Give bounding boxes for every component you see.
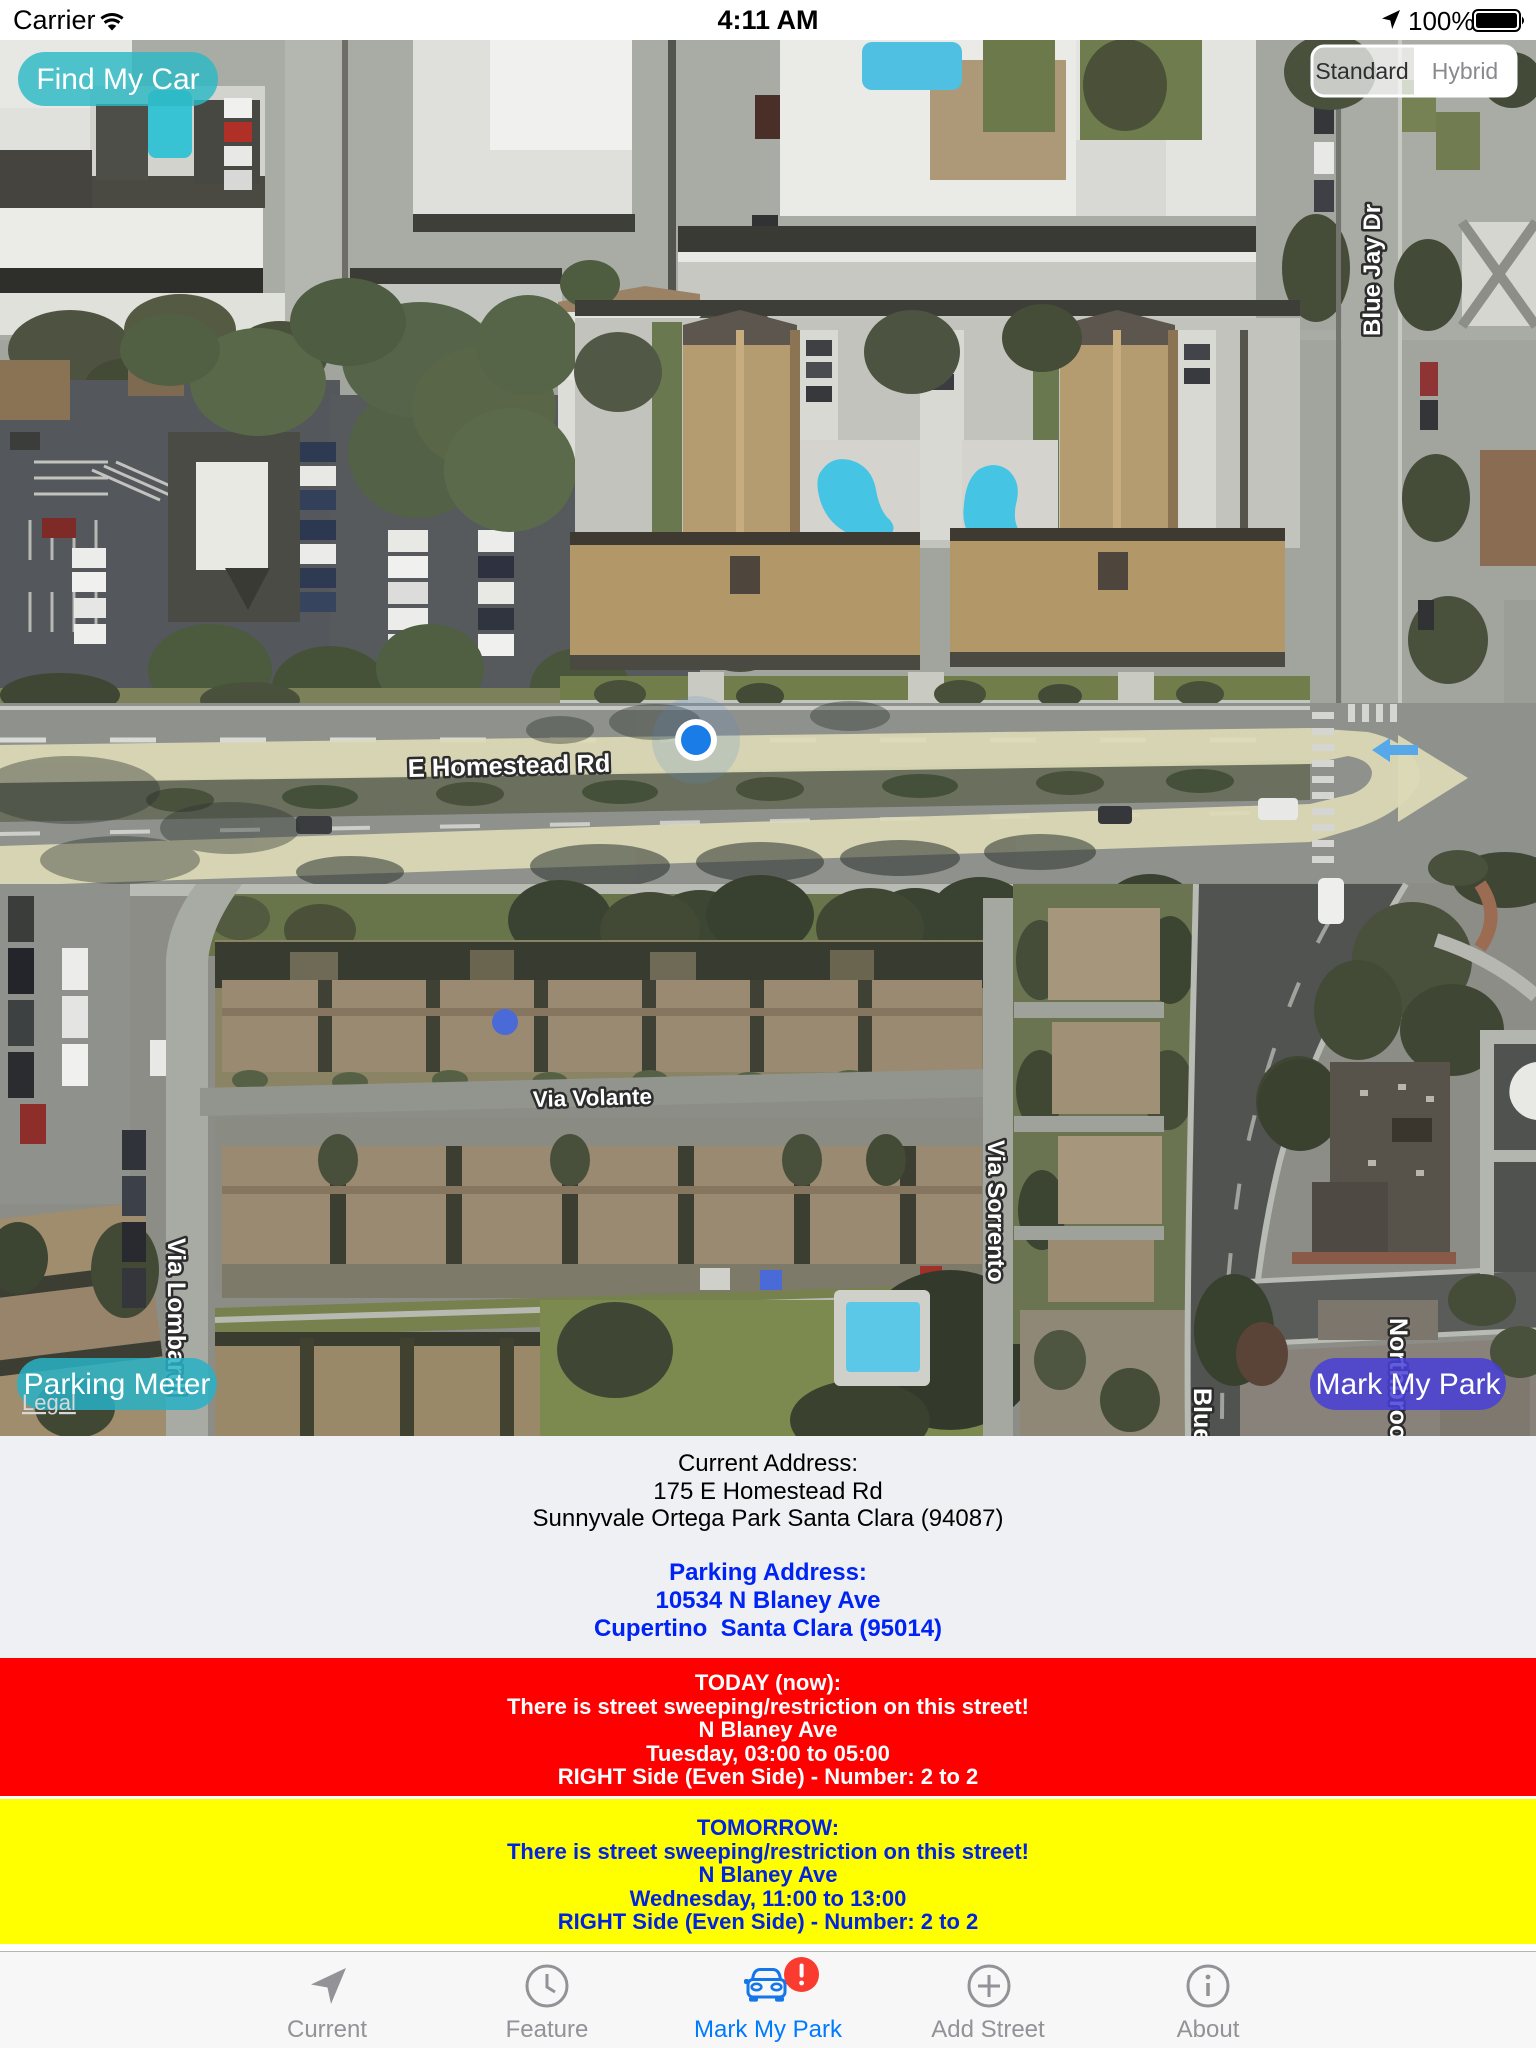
svg-text:Mark My Park: Mark My Park	[1315, 1368, 1501, 1401]
svg-text:Legal: Legal	[22, 1390, 76, 1415]
svg-text:Via Volante: Via Volante	[532, 1084, 652, 1112]
svg-text:Blue Jay Dr: Blue Jay Dr	[1188, 1388, 1216, 1436]
svg-text:Via Sorrento: Via Sorrento	[982, 1140, 1009, 1282]
svg-text:Find My Car: Find My Car	[36, 63, 199, 96]
svg-text:Standard: Standard	[1315, 58, 1408, 84]
svg-text:E Homestead Rd: E Homestead Rd	[407, 750, 610, 783]
svg-text:Blue Jay Dr: Blue Jay Dr	[1359, 204, 1386, 336]
svg-text:Hybrid: Hybrid	[1432, 58, 1498, 84]
